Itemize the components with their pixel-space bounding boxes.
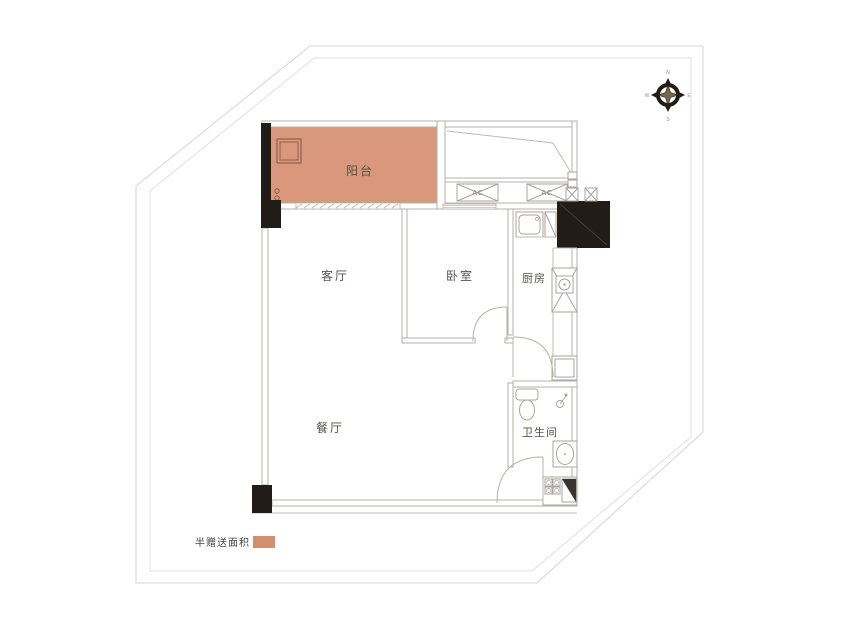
shaft-boxes bbox=[566, 172, 597, 201]
ac-label-1: AC bbox=[472, 188, 484, 197]
ac-label-2: AC bbox=[541, 188, 553, 197]
balcony-sliding-door bbox=[296, 203, 400, 209]
flue-box-small-2 bbox=[585, 188, 597, 201]
toilet-icon bbox=[516, 389, 538, 420]
shower-icon bbox=[557, 394, 568, 408]
floor-plan-svg: N E S W bbox=[0, 0, 850, 638]
kitchen-door bbox=[513, 337, 553, 377]
label-bathroom: 卫生间 bbox=[522, 425, 558, 439]
kitchen-sink-icon bbox=[516, 212, 543, 237]
label-bedroom: 卧室 bbox=[446, 268, 474, 283]
flue-stove-icon bbox=[552, 268, 577, 312]
label-kitchen: 厨房 bbox=[522, 272, 546, 285]
bedroom-door bbox=[473, 307, 507, 341]
kitchen-appliance bbox=[552, 356, 577, 380]
column-balcony-left bbox=[261, 123, 271, 202]
floor-plan-page: N E S W bbox=[0, 0, 850, 638]
ac-platform-1: AC bbox=[457, 184, 498, 201]
ac-platform-2: AC bbox=[527, 184, 567, 201]
roof-void-area bbox=[447, 131, 573, 176]
legend: 半赠送面积 bbox=[195, 536, 275, 549]
bathroom-door bbox=[497, 457, 543, 503]
label-dining-room: 餐厅 bbox=[316, 420, 344, 435]
compass-n: N bbox=[666, 70, 670, 76]
column-left-mid bbox=[261, 200, 281, 228]
label-living-room: 客厅 bbox=[321, 268, 349, 283]
flue-box-small-1 bbox=[566, 188, 578, 201]
kitchen-corner-counter bbox=[545, 212, 556, 237]
column-bottom-left bbox=[252, 485, 272, 513]
basin-icon bbox=[553, 441, 577, 467]
compass-icon: N E S W bbox=[645, 70, 692, 123]
label-balcony: 阳台 bbox=[346, 163, 374, 178]
compass-s: S bbox=[666, 117, 670, 123]
washer-box-icon bbox=[543, 477, 577, 505]
legend-swatch bbox=[253, 536, 275, 548]
compass-w: W bbox=[645, 93, 650, 99]
bedroom-window bbox=[443, 204, 496, 209]
legend-label: 半赠送面积 bbox=[195, 536, 250, 549]
column-top-right bbox=[557, 201, 610, 248]
